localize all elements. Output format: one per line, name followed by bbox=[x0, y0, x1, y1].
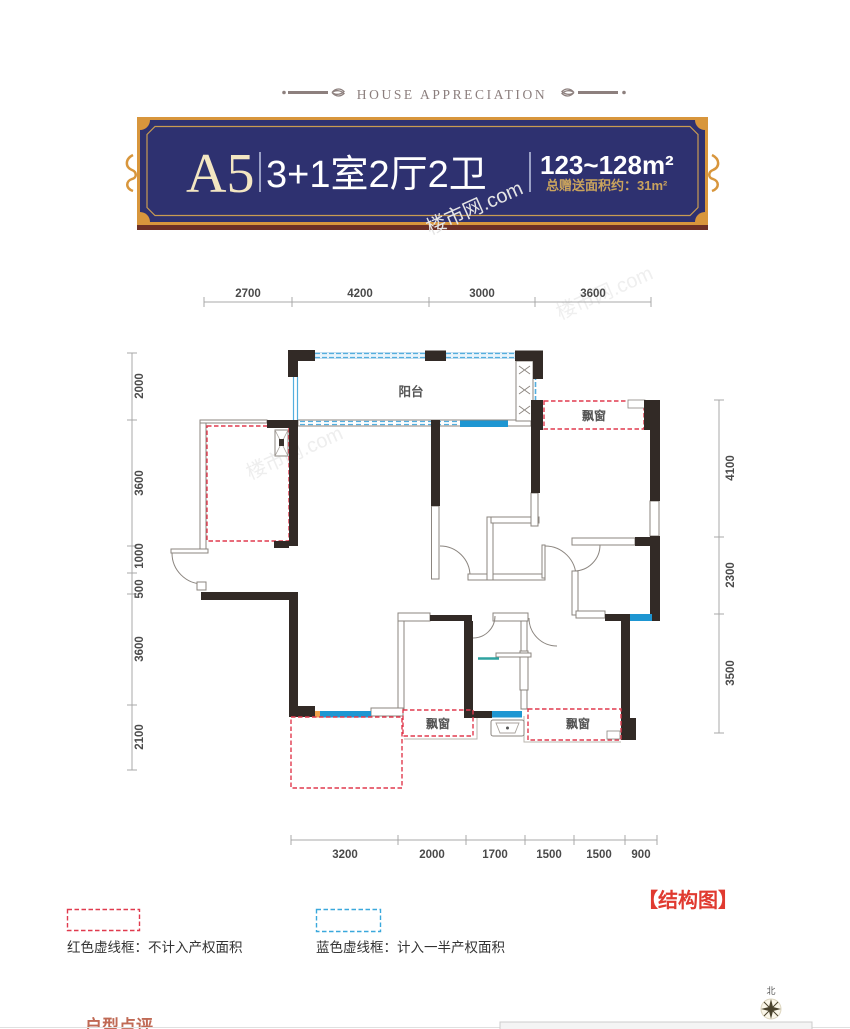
svg-text:1500: 1500 bbox=[536, 849, 562, 861]
svg-text:红色虚线框：不计入产权面积: 红色虚线框：不计入产权面积 bbox=[67, 939, 243, 955]
svg-text:3600: 3600 bbox=[580, 288, 606, 300]
svg-text:2000: 2000 bbox=[134, 373, 146, 399]
svg-text:A5: A5 bbox=[186, 143, 254, 205]
svg-text:1000: 1000 bbox=[134, 543, 146, 569]
svg-text:3000: 3000 bbox=[469, 288, 495, 300]
svg-text:HOUSE APPRECIATION: HOUSE APPRECIATION bbox=[357, 87, 547, 102]
svg-text:3+1室2厅2卫: 3+1室2厅2卫 bbox=[266, 154, 487, 196]
svg-text:蓝色虚线框：计入一半产权面积: 蓝色虚线框：计入一半产权面积 bbox=[316, 939, 505, 955]
svg-text:900: 900 bbox=[631, 849, 650, 861]
svg-text:3200: 3200 bbox=[332, 849, 358, 861]
svg-text:2100: 2100 bbox=[134, 724, 146, 750]
svg-text:3600: 3600 bbox=[134, 636, 146, 662]
svg-text:4200: 4200 bbox=[347, 288, 373, 300]
svg-text:123~128m²: 123~128m² bbox=[540, 150, 674, 180]
svg-text:北: 北 bbox=[766, 986, 775, 996]
svg-text:2000: 2000 bbox=[419, 849, 445, 861]
svg-text:4100: 4100 bbox=[725, 455, 737, 481]
svg-text:2700: 2700 bbox=[235, 288, 261, 300]
svg-text:总赠送面积约：31m²: 总赠送面积约：31m² bbox=[546, 178, 668, 193]
svg-text:1500: 1500 bbox=[586, 849, 612, 861]
svg-text:飘窗: 飘窗 bbox=[426, 716, 450, 731]
svg-text:500: 500 bbox=[134, 579, 146, 598]
svg-text:阳台: 阳台 bbox=[398, 384, 423, 399]
svg-text:飘窗: 飘窗 bbox=[582, 408, 606, 423]
svg-text:3500: 3500 bbox=[725, 660, 737, 686]
svg-text:1700: 1700 bbox=[482, 849, 508, 861]
svg-text:2300: 2300 bbox=[725, 562, 737, 588]
svg-text:【结构图】: 【结构图】 bbox=[638, 888, 738, 912]
svg-text:3600: 3600 bbox=[134, 470, 146, 496]
svg-text:飘窗: 飘窗 bbox=[566, 716, 590, 731]
